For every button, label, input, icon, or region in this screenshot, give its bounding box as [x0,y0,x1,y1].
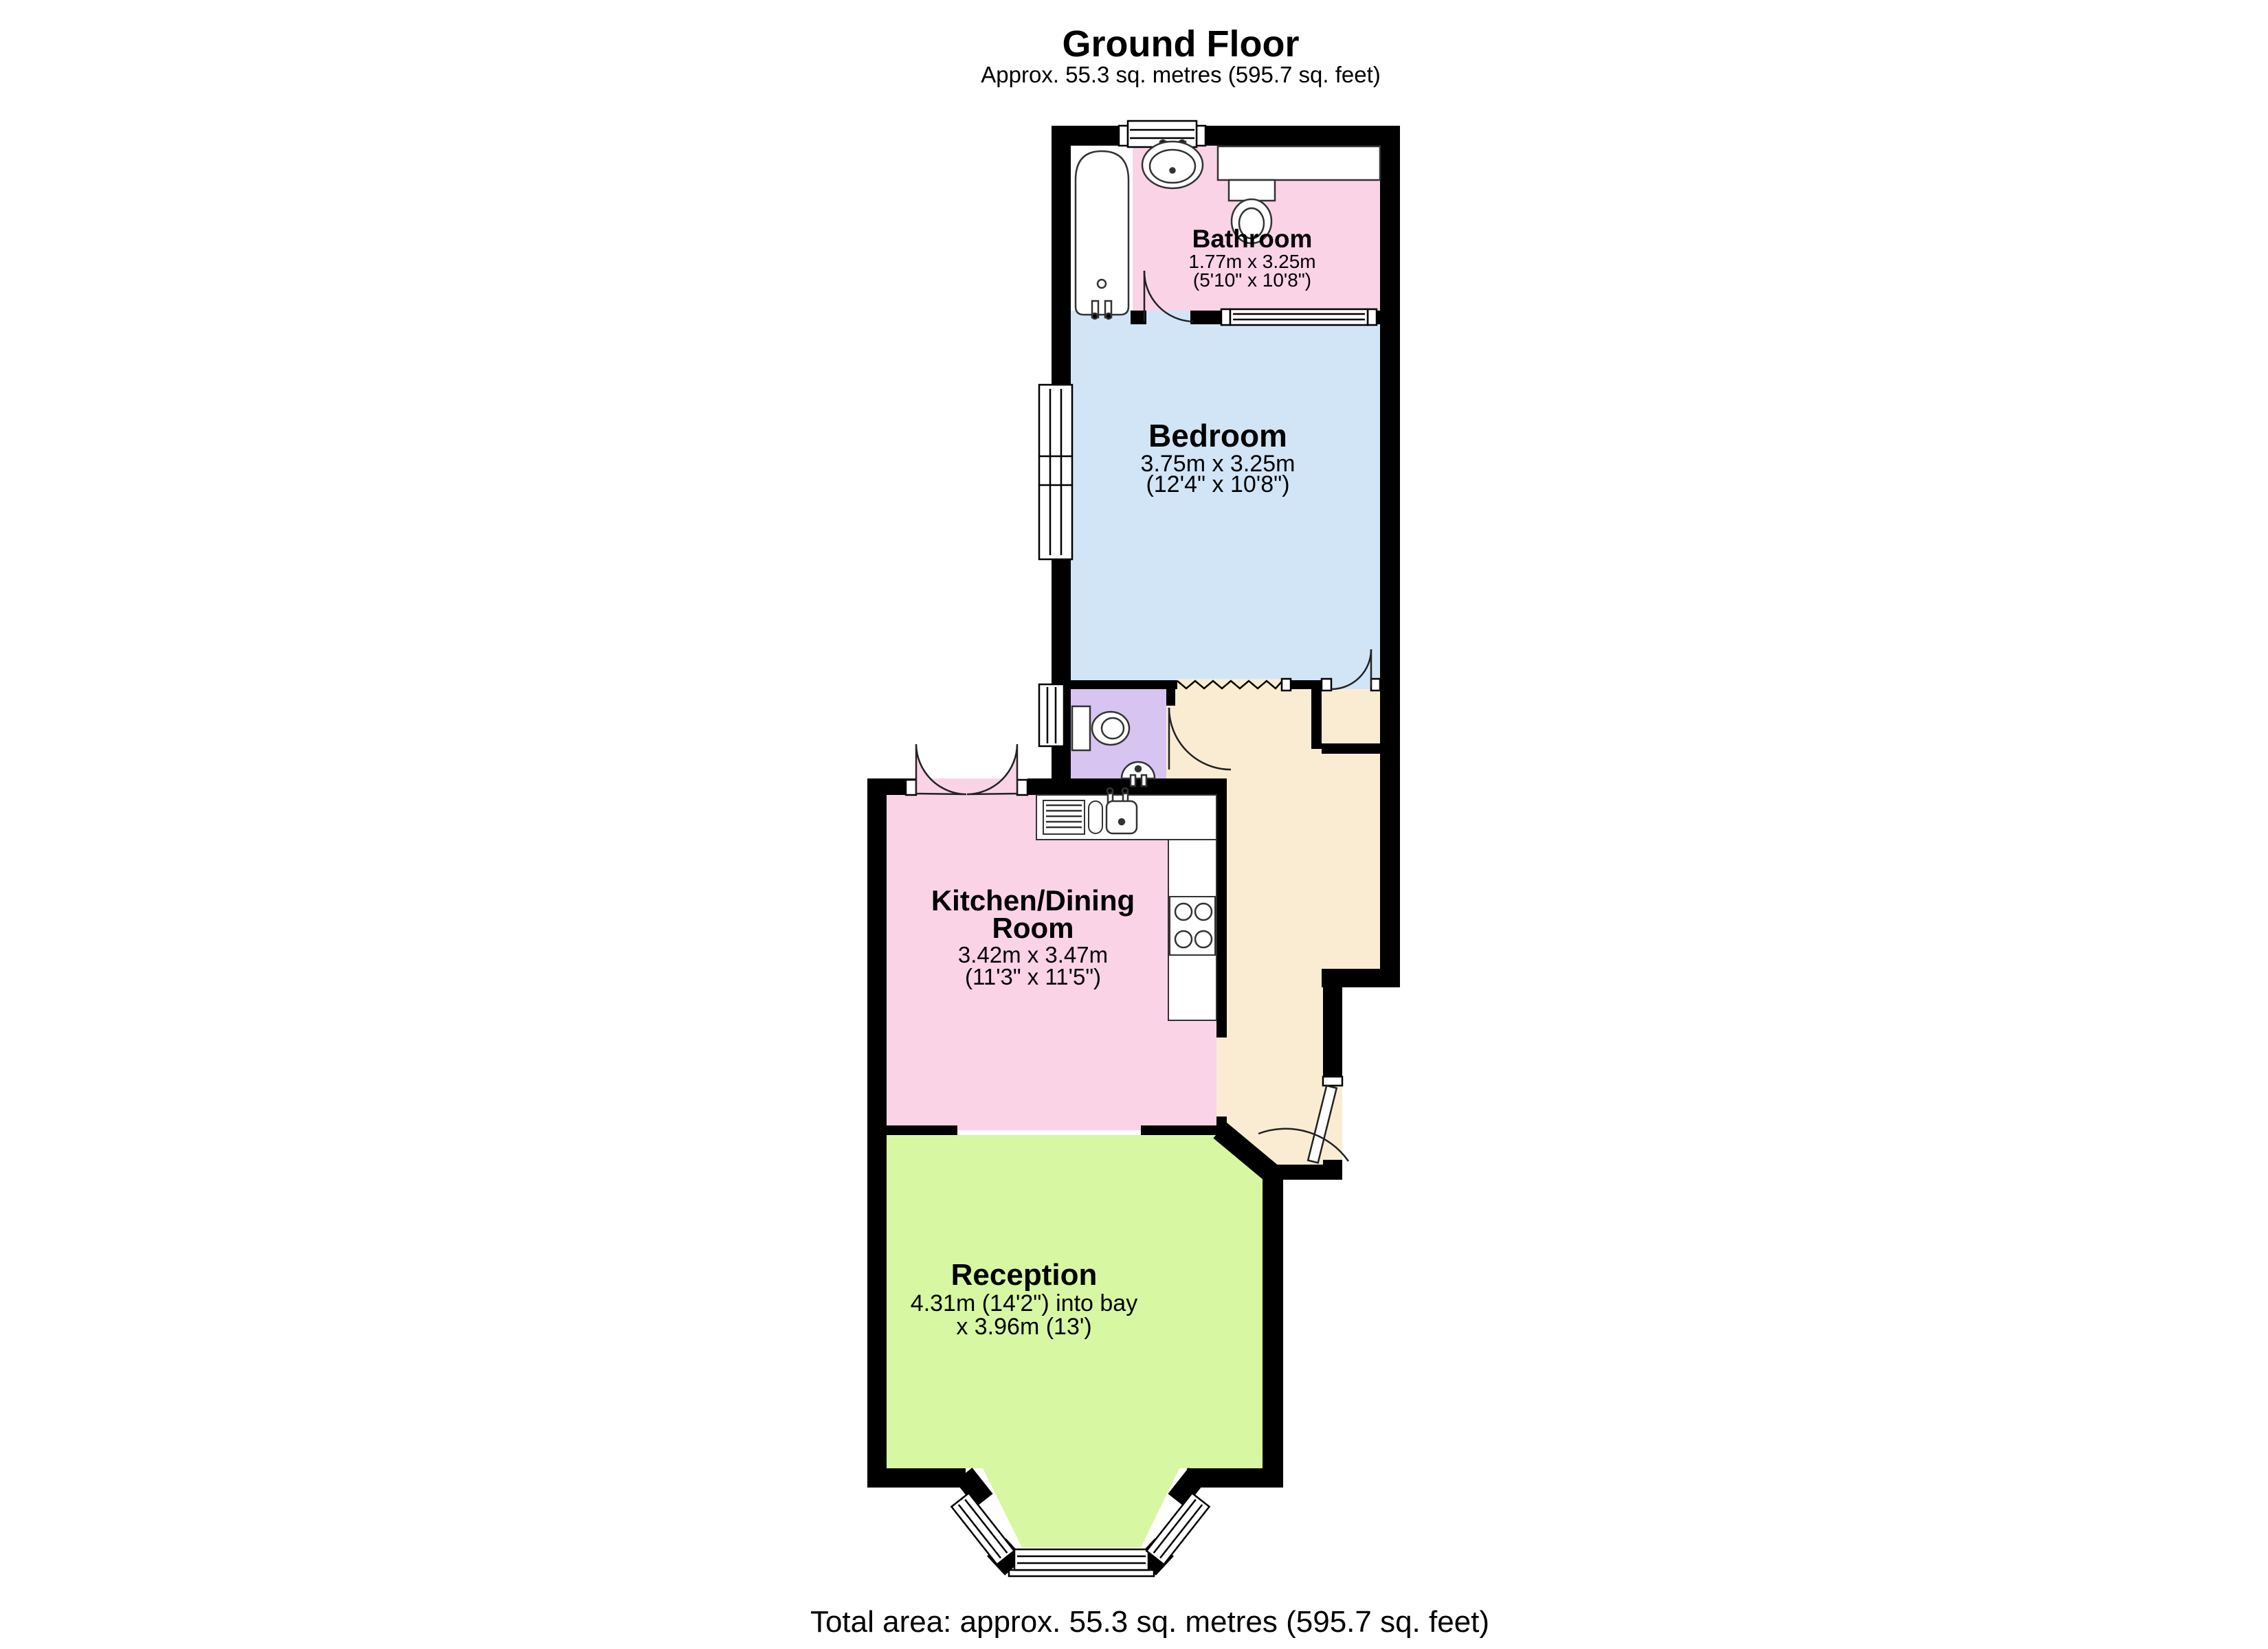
wc-toilet-cistern [1072,706,1090,750]
hob-ring [1195,904,1212,920]
wall-right-upper [1380,126,1400,987]
bedroom-dim-imperial: (12'4" x 10'8") [1146,471,1289,497]
hob-ring [1175,904,1192,920]
hallway-fill-mid [1227,778,1380,969]
wc-basin-drain [1135,766,1141,772]
window-jamb [1197,126,1205,146]
window-jamb [1119,126,1128,146]
reception-dim-line2: x 3.96m (13') [956,1314,1091,1340]
wall-kitchen-reception-right-stub [1141,1125,1227,1135]
door-jamb [1017,780,1027,795]
toilet-cistern [1229,180,1275,201]
internal-window [1230,309,1368,325]
plan-subtitle: Approx. 55.3 sq. metres (595.7 sq. feet) [981,62,1380,87]
floor-plan-page: Ground Floor Approx. 55.3 sq. metres (59… [0,0,2268,1649]
hob-ring [1175,931,1192,947]
wall-bay-left [867,1468,966,1488]
kitchen-sink-icon [1107,801,1137,833]
window-jamb [1221,309,1230,325]
tap-dot [1122,788,1128,794]
wall-closet-bottom [1322,743,1380,754]
bathroom-sink-basin [1150,150,1195,183]
tap-dot [1107,788,1113,794]
hallway-kitchen-opening [1216,1037,1227,1118]
wall-right-reception [1263,1168,1283,1488]
floor-plan: Ground Floor Approx. 55.3 sq. metres (59… [0,0,2268,1649]
bay-window-centre [1014,1549,1148,1570]
wall-right-hall [1323,987,1342,1086]
bedroom-room-fill [1071,311,1380,689]
wc-window [1039,684,1064,746]
door-jamb [1371,679,1380,691]
tap-dot [1106,313,1111,319]
bedroom-label: Bedroom [1148,418,1287,453]
wall-bedroom-bottom-left [1071,680,1177,689]
tap-dot [1092,313,1098,319]
door-jamb [1322,679,1331,691]
reception-dim-line1: 4.31m (14'2") into bay [911,1290,1137,1316]
bay-window-sill [1009,1570,1154,1576]
wall-wc-stub [1166,689,1175,706]
door-jamb [1323,1077,1342,1086]
kitchen-sink-small-bowl [1089,801,1102,833]
hob-ring [1195,931,1212,947]
bathroom-shelf [1218,146,1380,180]
door-jamb [906,780,916,795]
window-jamb [1368,309,1377,325]
wall-bedroom-bottom-right [1291,680,1322,689]
sink-drain [1119,819,1124,824]
wall-kitchen-hall-divider [1216,795,1227,1037]
wall-kitchen-reception-left-stub [887,1125,957,1135]
wc-toilet-bowl [1102,718,1124,739]
plan-title: Ground Floor [1063,23,1300,65]
bathtub-drain [1098,280,1106,288]
bathtub-icon [1076,151,1129,315]
sink-drain [1170,168,1175,173]
reception-label: Reception [951,1258,1098,1292]
bedroom-hall-opening [1177,679,1282,691]
door-jamb [1282,679,1291,691]
bedroom-window [1039,385,1072,559]
kitchen-label-line2: Room [992,912,1074,944]
kitchen-dim-imperial: (11'3" x 11'5") [965,964,1101,989]
hallway-fill-upper [1166,689,1380,778]
wall-top [1052,126,1400,146]
bathroom-dim-imperial: (5'10" x 10'8") [1193,269,1311,291]
wall-left-lower [867,778,887,1488]
wall-step [1322,969,1400,987]
total-area-label: Total area: approx. 55.3 sq. metres (595… [810,1605,1489,1639]
wc-basin-tap [1142,775,1146,786]
wall-closet-left [1311,689,1322,749]
wc-basin-tap [1131,775,1135,786]
bathroom-label: Bathroom [1192,225,1313,253]
